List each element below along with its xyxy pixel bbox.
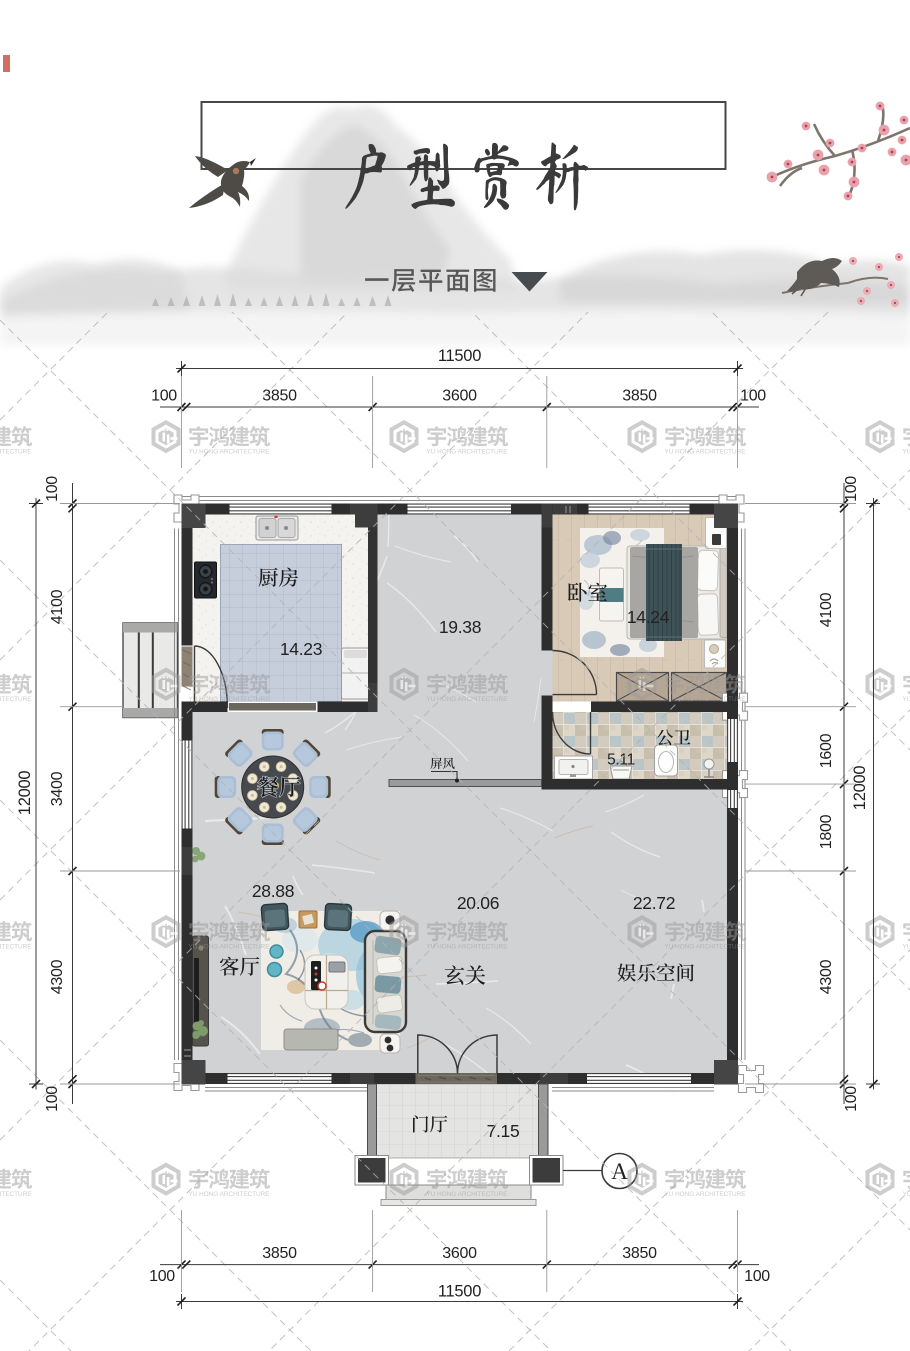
svg-text:4300: 4300 (49, 959, 66, 994)
svg-text:3850: 3850 (262, 388, 297, 405)
svg-text:11500: 11500 (438, 347, 481, 365)
svg-text:100: 100 (744, 1268, 770, 1285)
svg-text:1800: 1800 (818, 814, 835, 849)
svg-text:4300: 4300 (818, 959, 835, 994)
svg-text:11500: 11500 (438, 1283, 481, 1301)
svg-text:19.38: 19.38 (439, 617, 481, 637)
svg-text:20.06: 20.06 (457, 893, 499, 913)
svg-text:4100: 4100 (818, 592, 835, 627)
svg-text:7.15: 7.15 (487, 1121, 520, 1141)
svg-text:3600: 3600 (442, 388, 477, 405)
svg-text:100: 100 (44, 1086, 61, 1112)
svg-text:3850: 3850 (622, 1245, 657, 1262)
svg-text:5.11: 5.11 (607, 752, 635, 769)
svg-text:14.24: 14.24 (627, 607, 670, 627)
svg-text:12000: 12000 (851, 766, 869, 811)
svg-text:100: 100 (740, 388, 766, 405)
svg-text:4100: 4100 (49, 589, 66, 624)
svg-text:3850: 3850 (262, 1245, 297, 1262)
svg-text:100: 100 (149, 1268, 175, 1285)
svg-text:12000: 12000 (16, 771, 34, 816)
svg-text:3850: 3850 (622, 388, 657, 405)
svg-text:100: 100 (44, 476, 61, 502)
svg-text:100: 100 (151, 388, 177, 405)
svg-text:3600: 3600 (442, 1245, 477, 1262)
svg-text:1600: 1600 (818, 733, 835, 768)
svg-text:100: 100 (843, 1086, 860, 1112)
svg-text:3400: 3400 (49, 771, 66, 806)
svg-text:14.23: 14.23 (280, 639, 322, 659)
svg-text:22.72: 22.72 (633, 893, 675, 913)
svg-text:100: 100 (843, 476, 860, 502)
svg-text:28.88: 28.88 (252, 881, 294, 901)
